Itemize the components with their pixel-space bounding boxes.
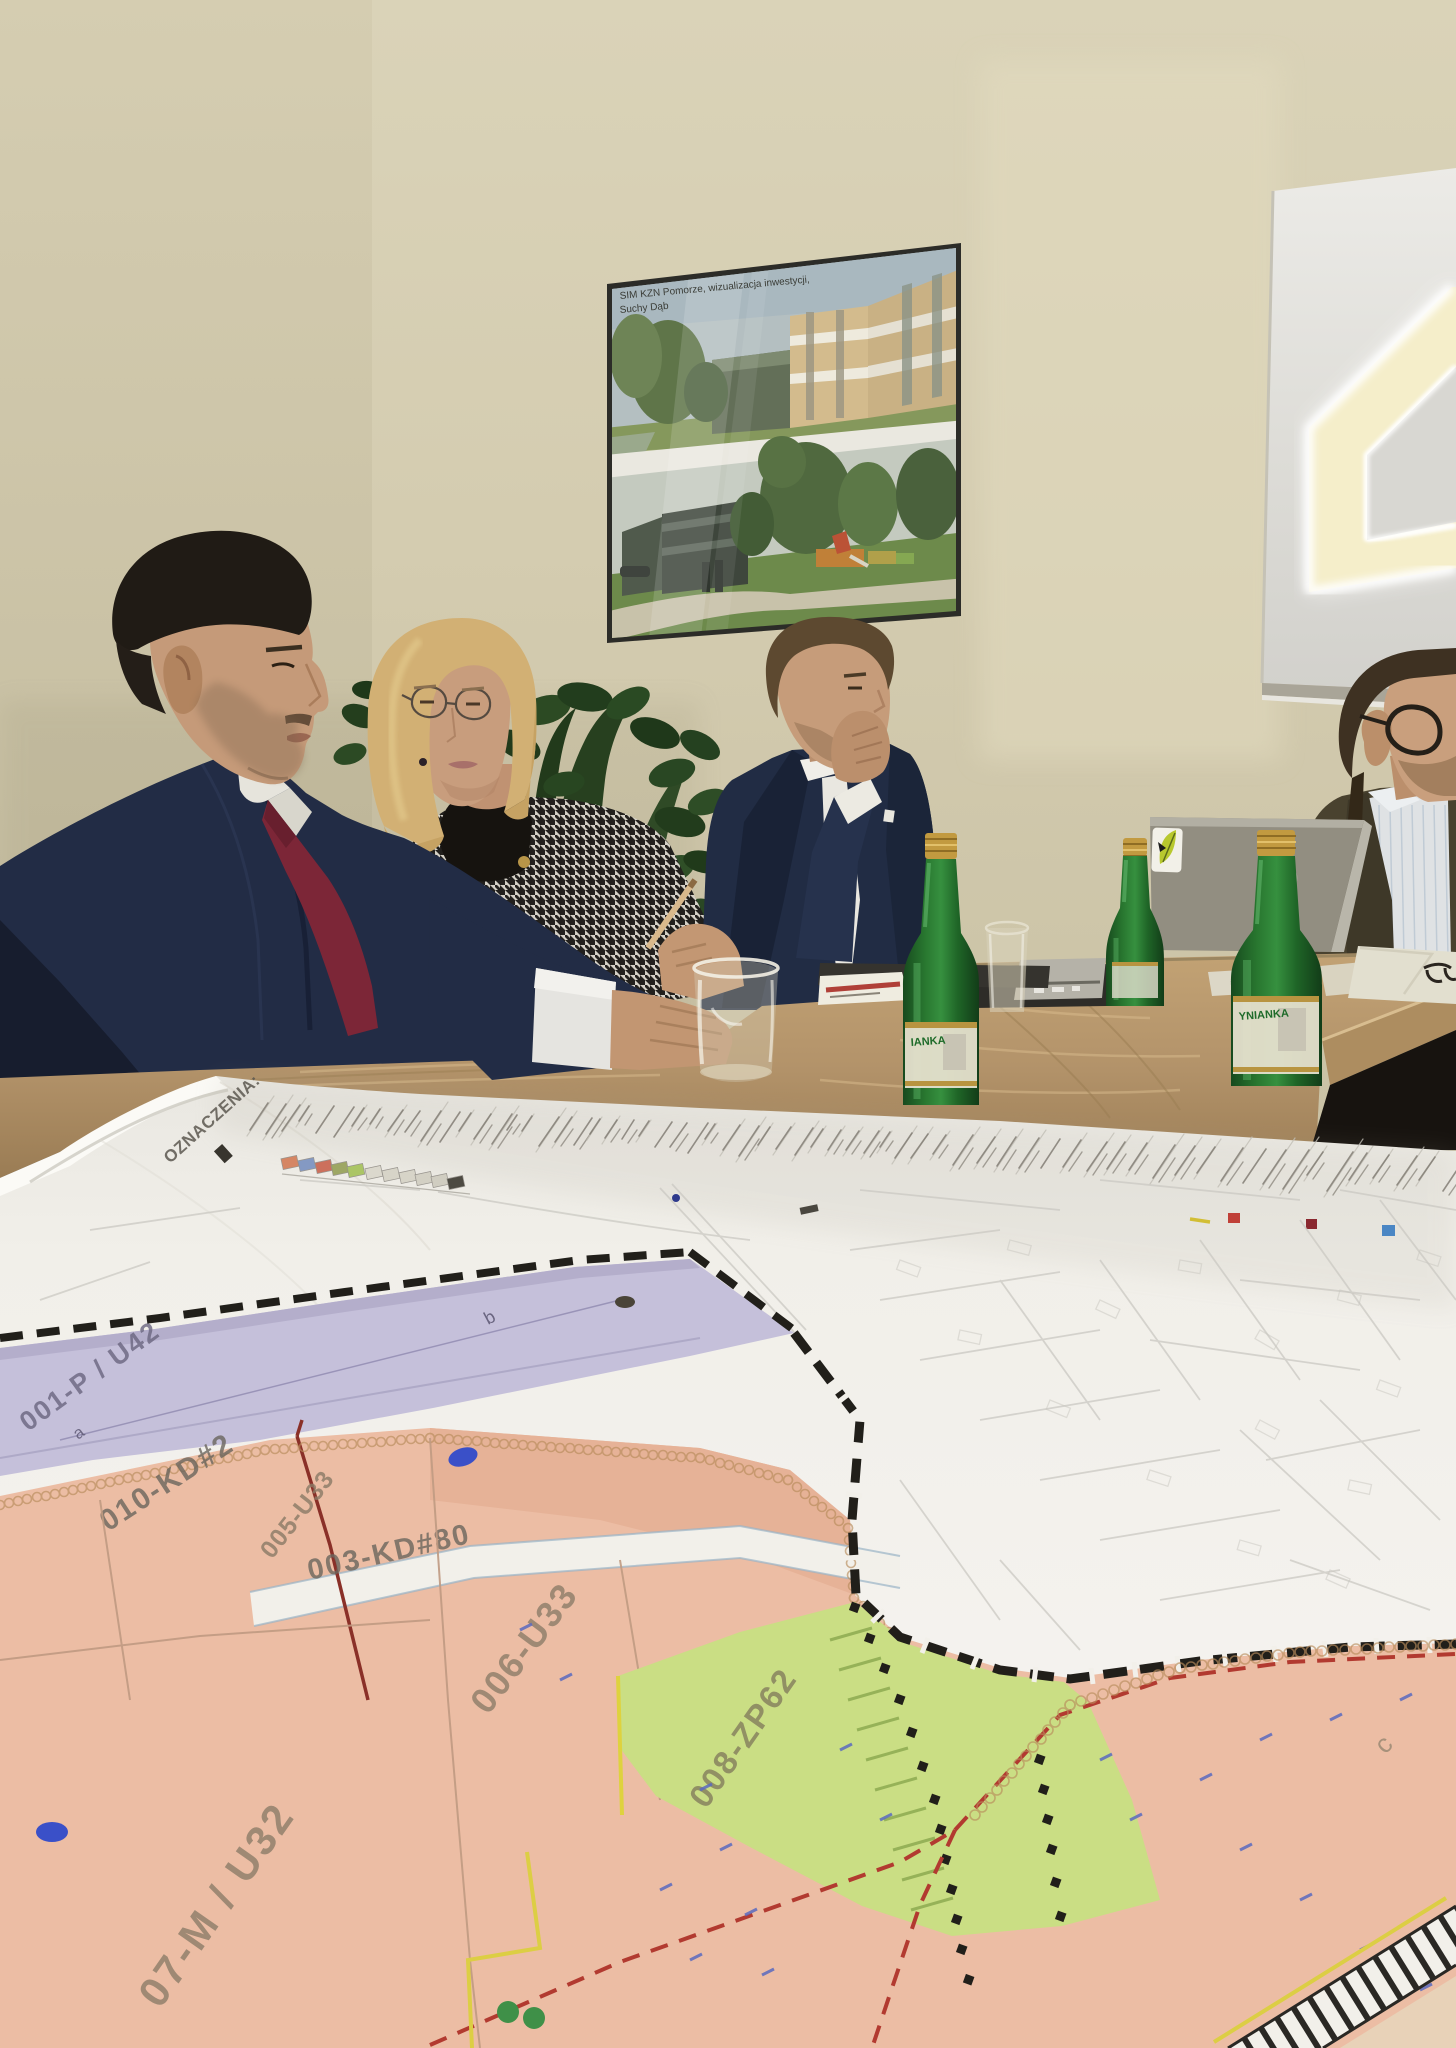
svg-text:IANKA: IANKA — [910, 1035, 946, 1049]
